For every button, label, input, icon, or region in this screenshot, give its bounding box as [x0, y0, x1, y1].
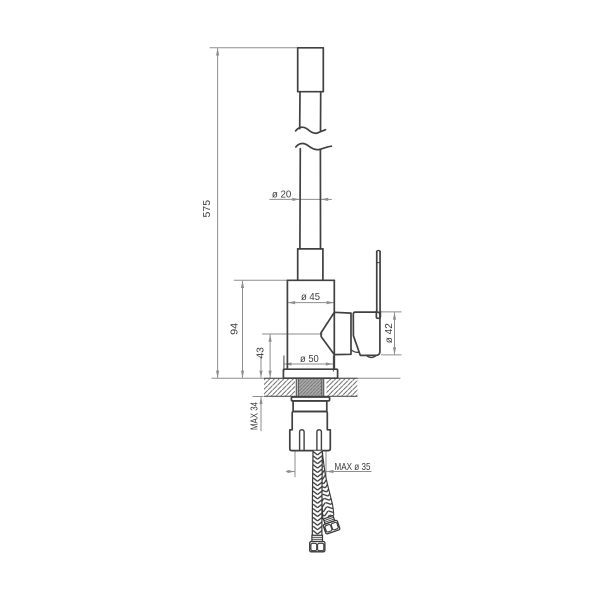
svg-text:94: 94: [228, 323, 240, 335]
svg-text:MAX ø 35: MAX ø 35: [335, 461, 371, 473]
svg-text:MAX 34: MAX 34: [248, 402, 260, 430]
svg-text:ø 50: ø 50: [300, 353, 319, 365]
svg-text:ø 42: ø 42: [383, 323, 395, 343]
svg-text:575: 575: [201, 200, 213, 218]
svg-text:ø 20: ø 20: [272, 189, 292, 201]
svg-text:43: 43: [255, 347, 267, 359]
svg-text:ø 45: ø 45: [301, 291, 320, 303]
